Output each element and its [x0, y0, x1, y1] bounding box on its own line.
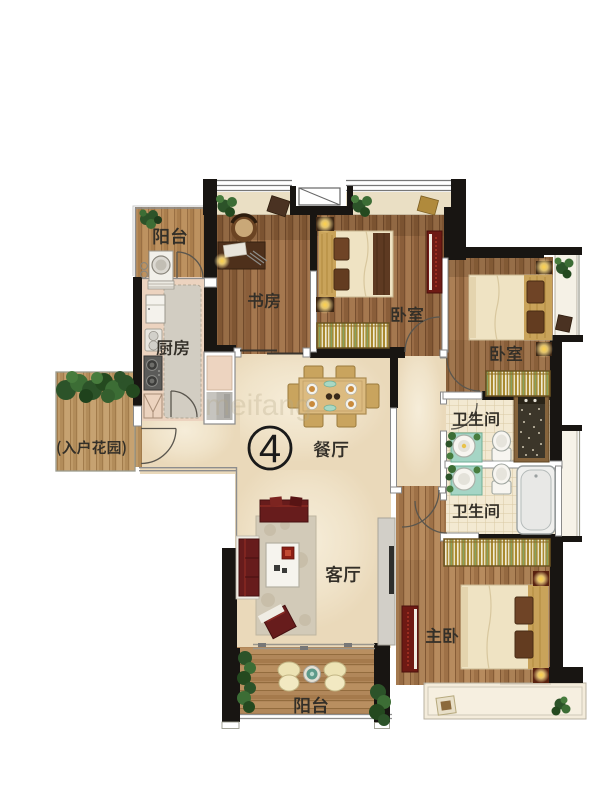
svg-text:4: 4 [259, 427, 281, 471]
svg-text:meifang: meifang [205, 389, 312, 422]
